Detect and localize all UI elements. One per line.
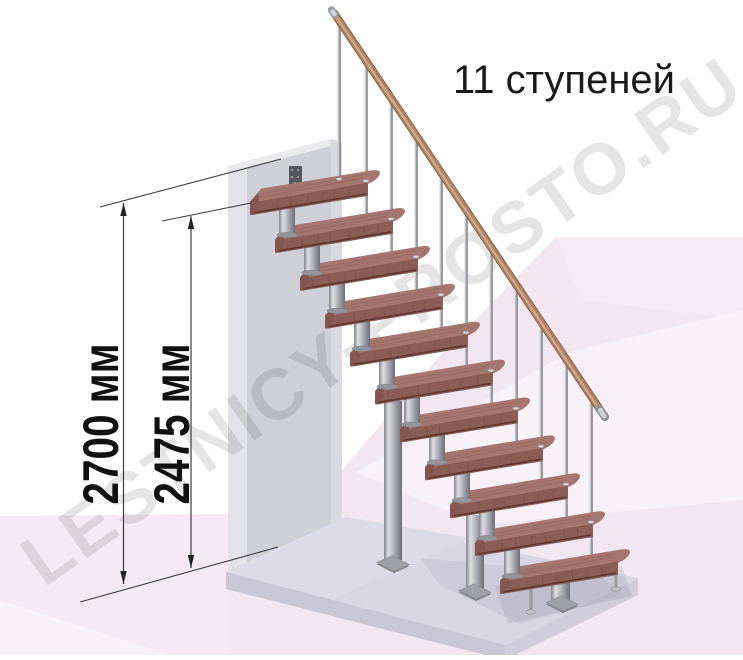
svg-text:11 ступеней: 11 ступеней (453, 58, 675, 102)
svg-text:2700 мм: 2700 мм (73, 344, 129, 505)
svg-text:2475 мм: 2475 мм (144, 344, 200, 505)
